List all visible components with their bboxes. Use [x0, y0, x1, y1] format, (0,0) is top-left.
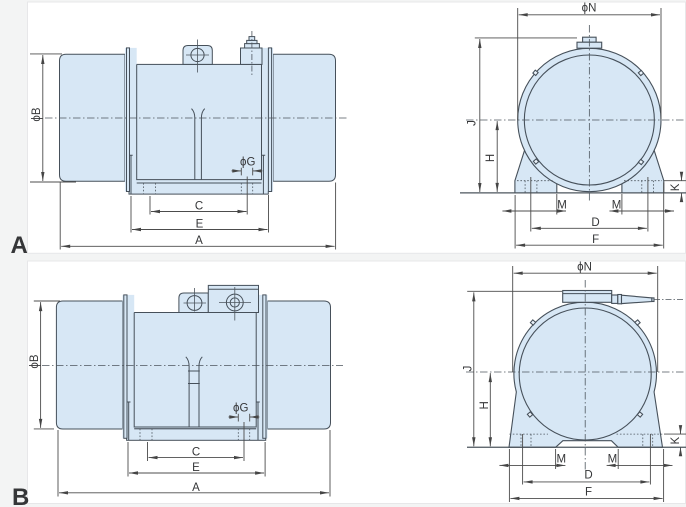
svg-text:K: K: [670, 183, 682, 191]
svg-text:ϕB: ϕB: [31, 107, 43, 121]
svg-text:F: F: [585, 487, 592, 499]
svg-text:M: M: [557, 200, 567, 212]
svg-text:A: A: [195, 235, 203, 247]
svg-text:ϕG: ϕG: [233, 402, 248, 414]
svg-text:K: K: [670, 437, 682, 445]
svg-text:H: H: [479, 401, 491, 409]
svg-text:H: H: [485, 154, 497, 162]
svg-text:ϕN: ϕN: [577, 262, 592, 274]
svg-text:D: D: [591, 217, 599, 229]
svg-text:J: J: [463, 366, 475, 372]
svg-text:E: E: [192, 462, 200, 474]
svg-text:M: M: [608, 453, 618, 465]
svg-text:C: C: [192, 446, 200, 458]
svg-text:A: A: [192, 482, 200, 494]
svg-text:B: B: [12, 484, 29, 507]
svg-text:C: C: [195, 200, 203, 212]
svg-text:J: J: [467, 120, 479, 126]
svg-text:M: M: [612, 200, 622, 212]
svg-text:M: M: [557, 453, 567, 465]
svg-text:ϕN: ϕN: [582, 3, 597, 15]
svg-text:E: E: [196, 218, 204, 230]
svg-text:A: A: [11, 232, 28, 259]
svg-text:ϕB: ϕB: [29, 354, 41, 368]
svg-text:ϕG: ϕG: [240, 156, 255, 168]
svg-text:D: D: [584, 470, 592, 482]
svg-text:F: F: [592, 234, 599, 246]
